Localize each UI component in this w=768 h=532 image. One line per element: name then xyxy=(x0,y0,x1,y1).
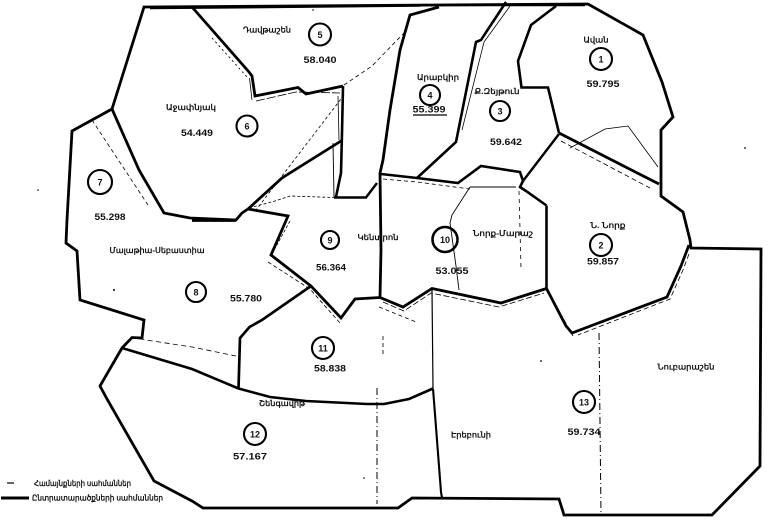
svg-text:12: 12 xyxy=(250,430,260,440)
svg-text:Էրեբունի: Էրեբունի xyxy=(451,431,491,440)
svg-text:9: 9 xyxy=(327,236,332,246)
svg-text:8: 8 xyxy=(193,288,198,298)
svg-text:Շենգավիթ: Շենգավիթ xyxy=(259,399,306,408)
svg-text:Արաբկիր: Արաբկիր xyxy=(417,73,459,82)
svg-text:11: 11 xyxy=(318,344,328,354)
svg-text:58.040: 58.040 xyxy=(304,55,337,65)
svg-text:4: 4 xyxy=(427,91,432,101)
svg-text:3: 3 xyxy=(497,107,502,117)
svg-text:58.838: 58.838 xyxy=(314,364,346,374)
svg-text:59.857: 59.857 xyxy=(587,257,619,267)
svg-text:13: 13 xyxy=(579,398,589,408)
svg-text:Կենտրոն: Կենտրոն xyxy=(358,233,399,242)
svg-text:57.167: 57.167 xyxy=(233,452,267,462)
svg-text:55.298: 55.298 xyxy=(95,212,126,222)
svg-text:59.734: 59.734 xyxy=(568,427,601,437)
svg-text:Ընտրատարածքների սահմաններ: Ընտրատարածքների սահմաններ xyxy=(32,493,163,503)
svg-text:56.364: 56.364 xyxy=(316,263,346,273)
svg-text:Համայնքների սահմաններ: Համայնքների սահմաններ xyxy=(34,478,131,488)
svg-text:54.449: 54.449 xyxy=(181,128,213,138)
svg-text:1: 1 xyxy=(598,55,603,65)
svg-text:Ք.Զեյթուն: Ք.Զեյթուն xyxy=(475,87,520,96)
svg-text:Նուբարաշեն: Նուբարաշեն xyxy=(656,363,714,372)
svg-text:7: 7 xyxy=(97,178,102,188)
svg-text:10: 10 xyxy=(440,235,450,245)
svg-text:2: 2 xyxy=(598,241,603,251)
svg-text:55.780: 55.780 xyxy=(230,294,262,304)
svg-text:59.642: 59.642 xyxy=(490,137,522,147)
svg-text:Նորք-Մարաշ: Նորք-Մարաշ xyxy=(472,229,533,238)
svg-text:Աջափնյակ: Աջափնյակ xyxy=(166,103,216,112)
svg-text:59.795: 59.795 xyxy=(587,79,620,89)
svg-text:Ավան: Ավան xyxy=(584,36,609,45)
svg-text:55.399: 55.399 xyxy=(413,105,446,115)
svg-text:Մալաթիա-Սեբաստիա: Մալաթիա-Սեբաստիա xyxy=(110,246,205,255)
svg-text:Ն. Նորք: Ն. Նորք xyxy=(589,221,625,230)
svg-text:53.055: 53.055 xyxy=(436,266,469,276)
svg-text:Դավթաշեն: Դավթաշեն xyxy=(243,26,291,35)
svg-text:6: 6 xyxy=(244,122,249,132)
svg-text:5: 5 xyxy=(317,30,322,40)
